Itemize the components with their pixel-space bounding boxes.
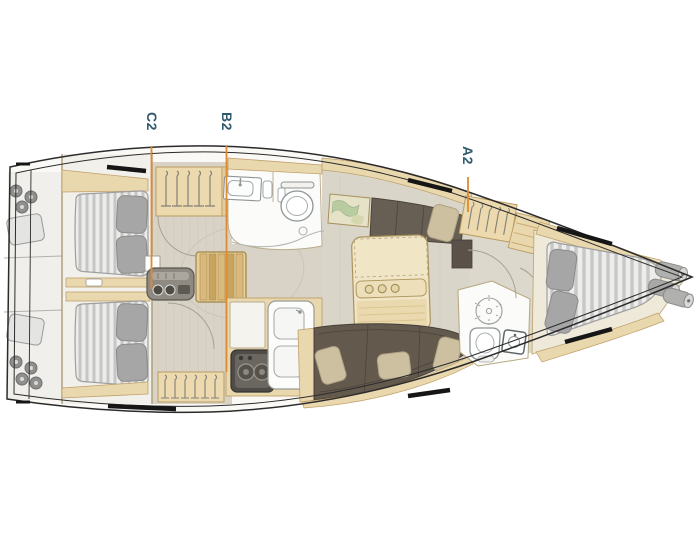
wardrobe-top bbox=[156, 167, 234, 216]
cabinet bbox=[263, 181, 272, 198]
pillow-icon bbox=[116, 343, 148, 382]
locker-dark bbox=[452, 240, 472, 268]
bed-head-board bbox=[66, 292, 150, 301]
bed-mattress-icon bbox=[74, 298, 148, 390]
engine-unit-icon bbox=[147, 268, 194, 300]
layout-drawing bbox=[0, 0, 700, 558]
bed-mattress-icon bbox=[74, 188, 148, 280]
pillow-icon bbox=[545, 248, 577, 291]
pillow-icon bbox=[116, 235, 148, 274]
pillow-icon bbox=[116, 195, 148, 234]
wardrobe-bottom bbox=[158, 372, 224, 402]
section-label-b2: B2 bbox=[219, 112, 235, 131]
saloon-table bbox=[351, 235, 430, 334]
pillow-icon bbox=[116, 303, 148, 342]
towel-rail-icon bbox=[281, 182, 314, 188]
aft-head bbox=[223, 158, 324, 250]
section-label-a2: A2 bbox=[460, 146, 476, 165]
forward-head bbox=[458, 281, 530, 366]
section-label-c2: C2 bbox=[144, 112, 160, 131]
yacht-layout-plan: C2 B2 A2 bbox=[0, 0, 700, 558]
chart-map-icon bbox=[328, 194, 370, 227]
counter bbox=[230, 302, 265, 348]
sink-icon bbox=[223, 176, 261, 201]
companionway-steps-icon bbox=[196, 252, 246, 302]
sofa-trim bbox=[298, 328, 316, 402]
bed-foot-board bbox=[66, 278, 150, 287]
